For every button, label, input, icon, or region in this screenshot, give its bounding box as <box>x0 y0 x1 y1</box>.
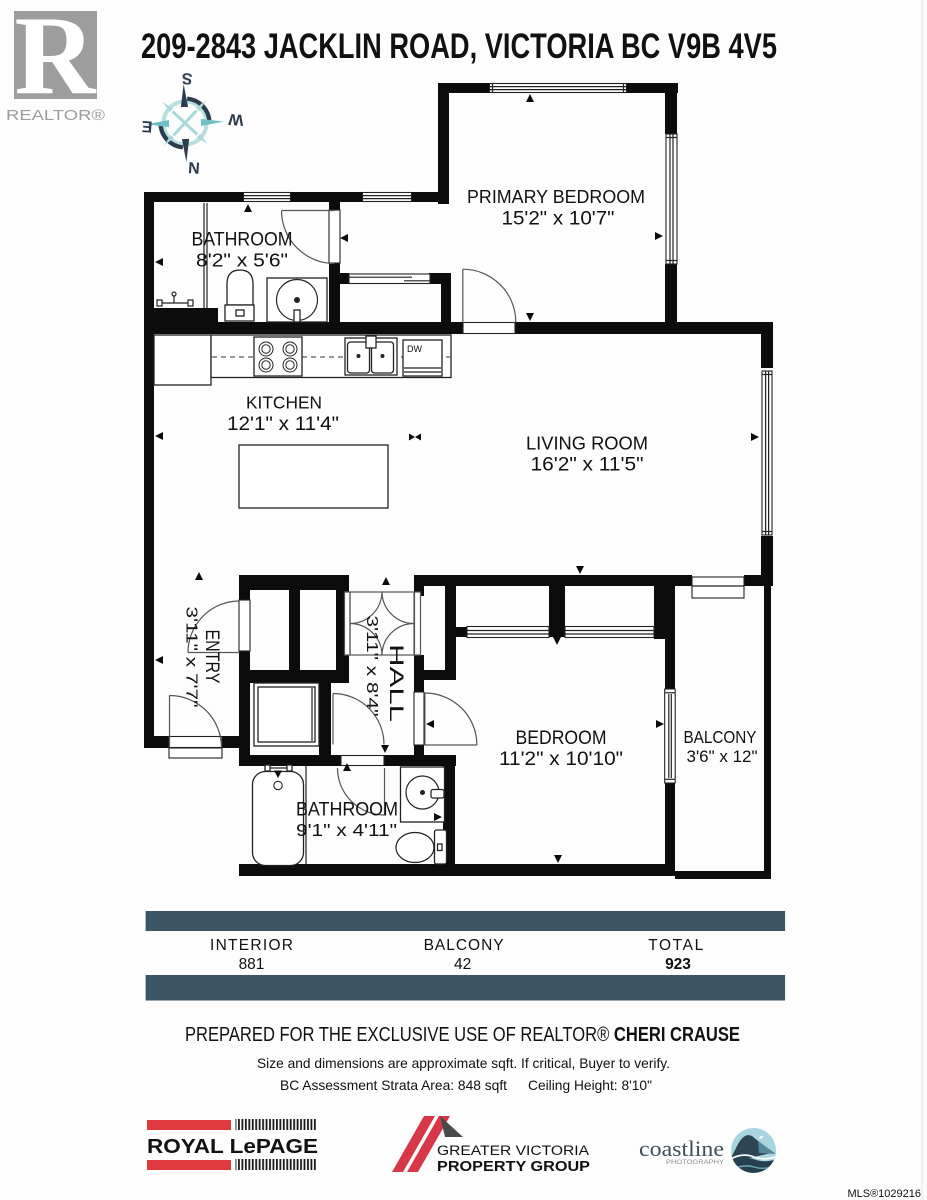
svg-text:BALCONY: BALCONY <box>424 937 504 954</box>
svg-text:ROYAL LePAGE: ROYAL LePAGE <box>147 1136 318 1158</box>
svg-text:BEDROOM: BEDROOM <box>516 728 607 749</box>
svg-text:E: E <box>141 117 153 135</box>
svg-text:BALCONY: BALCONY <box>684 727 757 747</box>
svg-text:3'6" x 12": 3'6" x 12" <box>687 747 758 766</box>
svg-text:3'11" x 8'4": 3'11" x 8'4" <box>363 616 380 717</box>
svg-text:ENTRY: ENTRY <box>201 630 222 684</box>
svg-text:Ceiling Height: 8'10": Ceiling Height: 8'10" <box>528 1077 652 1093</box>
svg-text:3'11" x 7'7": 3'11" x 7'7" <box>183 607 200 708</box>
svg-text:N: N <box>188 158 201 176</box>
svg-text:8'2" x 5'6": 8'2" x 5'6" <box>196 250 288 271</box>
svg-text:HALL: HALL <box>385 644 406 722</box>
svg-text:16'2" x 11'5": 16'2" x 11'5" <box>531 455 644 476</box>
svg-text:KITCHEN: KITCHEN <box>246 393 322 413</box>
svg-text:209-2843 JACKLIN ROAD, VICTORI: 209-2843 JACKLIN ROAD, VICTORIA BC V9B 4… <box>141 27 777 66</box>
svg-text:BC Assessment Strata Area: 848: BC Assessment Strata Area: 848 sqft <box>280 1077 507 1093</box>
svg-text:12'1" x 11'4": 12'1" x 11'4" <box>227 414 339 435</box>
svg-text:881: 881 <box>239 956 265 973</box>
svg-text:coastline: coastline <box>639 1136 724 1161</box>
svg-text:BATHROOM: BATHROOM <box>192 230 293 251</box>
svg-text:W: W <box>227 110 244 128</box>
svg-text:9'1" x 4'11": 9'1" x 4'11" <box>296 820 397 840</box>
svg-text:Size and dimensions are approx: Size and dimensions are approximate sqft… <box>257 1055 670 1071</box>
svg-text:BATHROOM: BATHROOM <box>296 799 398 821</box>
svg-text:PREPARED FOR THE EXCLUSIVE USE: PREPARED FOR THE EXCLUSIVE USE OF REALTO… <box>185 1024 740 1046</box>
svg-text:DW: DW <box>407 344 422 354</box>
svg-text:REALTOR®: REALTOR® <box>6 107 105 124</box>
svg-text:15'2" x 10'7": 15'2" x 10'7" <box>502 209 615 230</box>
svg-text:S: S <box>181 69 193 87</box>
svg-text:923: 923 <box>665 956 691 973</box>
svg-text:PHOTOGRAPHY: PHOTOGRAPHY <box>666 1159 725 1166</box>
svg-text:42: 42 <box>454 956 471 973</box>
svg-text:11'2" x 10'10": 11'2" x 10'10" <box>499 748 623 770</box>
svg-text:MLS®1029216: MLS®1029216 <box>847 1188 921 1200</box>
svg-text:PRIMARY BEDROOM: PRIMARY BEDROOM <box>467 187 645 207</box>
svg-text:TOTAL: TOTAL <box>648 937 703 954</box>
svg-text:LIVING ROOM: LIVING ROOM <box>526 433 648 454</box>
svg-text:R: R <box>15 0 97 118</box>
svg-text:GREATER VICTORIA: GREATER VICTORIA <box>437 1143 589 1158</box>
svg-text:PROPERTY GROUP: PROPERTY GROUP <box>437 1159 590 1175</box>
